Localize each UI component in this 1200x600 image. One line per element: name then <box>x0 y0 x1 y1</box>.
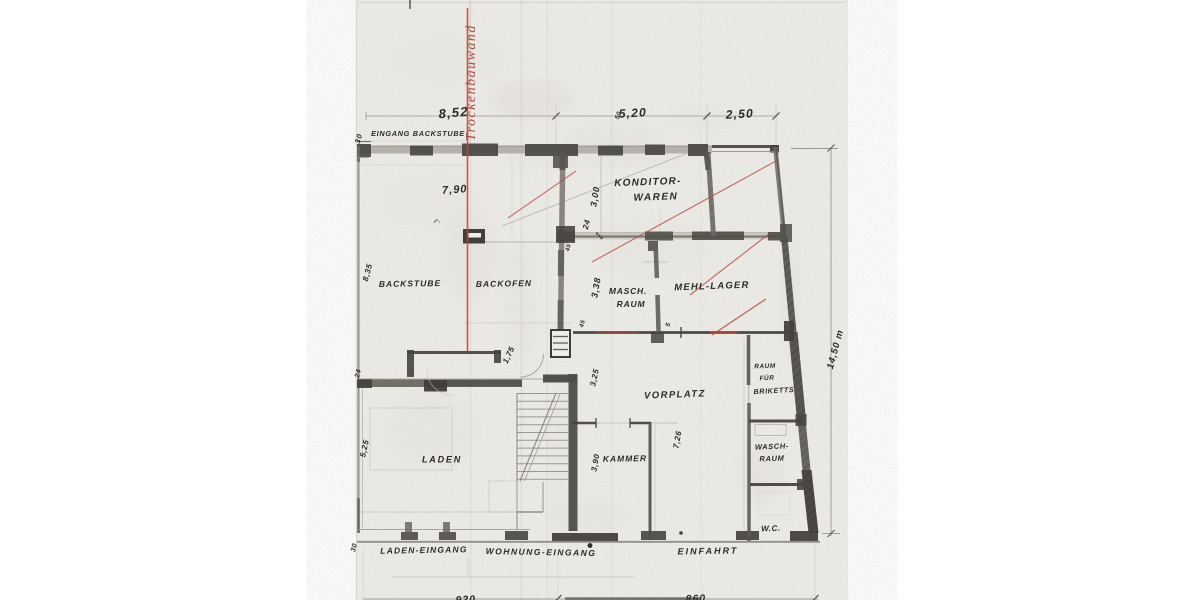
svg-text:W.C.: W.C. <box>761 524 781 534</box>
svg-text:BACKSTUBE: BACKSTUBE <box>379 278 442 289</box>
svg-text:RAUM: RAUM <box>759 454 784 464</box>
svg-text:930: 930 <box>455 593 476 600</box>
svg-text:Trockenbauwand: Trockenbauwand <box>464 24 479 141</box>
svg-text:LADEN: LADEN <box>422 455 462 465</box>
svg-text:WAREN: WAREN <box>633 191 678 204</box>
svg-text:RAUM: RAUM <box>754 363 776 371</box>
svg-text:860: 860 <box>685 593 706 600</box>
svg-text:BACKOFEN: BACKOFEN <box>476 278 532 289</box>
svg-text:MASCH.: MASCH. <box>609 286 647 296</box>
svg-text:RAUM: RAUM <box>617 299 646 309</box>
svg-text:EINFAHRT: EINFAHRT <box>677 545 738 556</box>
svg-text:VORPLATZ: VORPLATZ <box>644 388 706 401</box>
svg-text:2,50: 2,50 <box>724 106 754 122</box>
svg-text:WOHNUNG-EINGANG: WOHNUNG-EINGANG <box>486 546 597 558</box>
svg-text:KONDITOR-: KONDITOR- <box>614 176 682 189</box>
svg-text:EINGANG BACKSTUBE: EINGANG BACKSTUBE <box>371 129 465 138</box>
svg-text:KAMMER: KAMMER <box>603 453 647 464</box>
svg-text:7,90: 7,90 <box>442 183 468 197</box>
svg-text:LADEN-EINGANG: LADEN-EINGANG <box>380 544 468 556</box>
svg-text:WASCH-: WASCH- <box>755 441 789 451</box>
